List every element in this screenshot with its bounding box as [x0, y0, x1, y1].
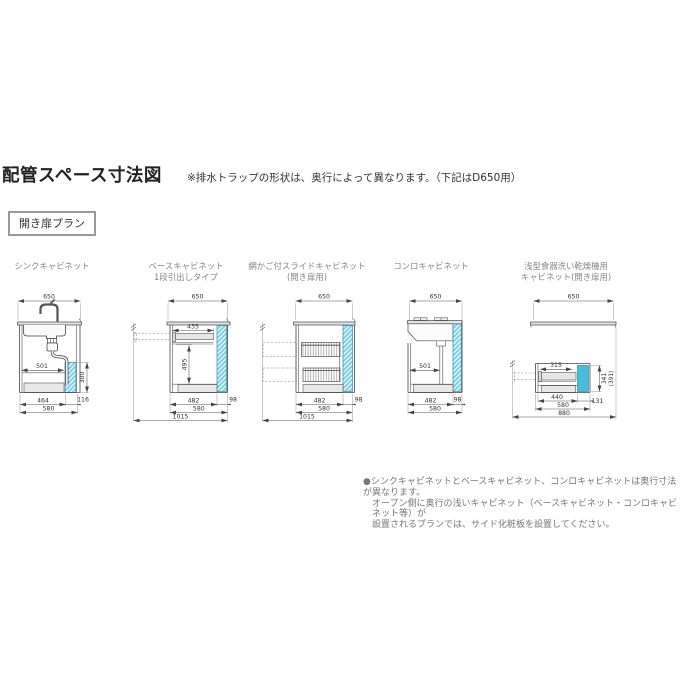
- sink-cabinet-drawing: 650 501 300: [18, 294, 89, 414]
- dim-label: 98: [229, 397, 237, 404]
- plan-badge: 開き扉プラン: [8, 211, 96, 236]
- dim-label: 482: [425, 397, 437, 404]
- label-conro-cabinet: コンロキャビネット: [381, 261, 481, 272]
- dim-label: 580: [43, 405, 55, 412]
- dim-label: 116: [77, 397, 89, 404]
- dim-label: 98: [355, 397, 363, 404]
- label-base-cabinet: ベースキャビネット 1段引出しタイプ: [136, 261, 236, 283]
- label-line: 1段引出しタイプ: [136, 272, 236, 283]
- cooktop-plate: [408, 321, 463, 324]
- dim-label: 501: [36, 363, 48, 370]
- dim-label: 464: [37, 397, 49, 404]
- drain-trap: [47, 343, 58, 351]
- drawer-body: [176, 334, 214, 340]
- dim-label: 650: [430, 294, 442, 301]
- footnote-line: オープン側に奥行の浅いキャビネット（ベースキャビネット・コンロキャビネット等）が: [363, 499, 678, 521]
- slide-cabinet-drawing: 650 482: [260, 294, 362, 422]
- piping-space-hatch: [453, 324, 462, 392]
- label-line: キャビネット(開き扉用): [509, 272, 623, 283]
- label-slide-cabinet: 網かご付スライドキャビネット (開き扉用): [242, 261, 372, 283]
- dim-label: 580: [557, 402, 569, 409]
- cabinet-base: [24, 383, 64, 393]
- footnote-line: 設置されるプランでは、サイド化粧板を設置してください。: [363, 520, 678, 531]
- wire-basket-pullout-dashed: [263, 343, 297, 357]
- label-line: (開き扉用): [242, 272, 372, 283]
- wire-basket-pullout-dashed: [263, 368, 297, 382]
- dim-label: 1015: [299, 413, 315, 420]
- label-line: シンクキャビネット: [2, 261, 102, 272]
- dim-label: 300: [79, 372, 86, 384]
- gas-fitting: [437, 341, 446, 346]
- dim-label: 440: [551, 394, 563, 401]
- sink-basin: [24, 325, 66, 339]
- dim-label: 482: [314, 397, 326, 404]
- dim-label: 580: [318, 405, 330, 412]
- dim-label: 482: [188, 397, 200, 404]
- label-sink-cabinet: シンクキャビネット: [2, 261, 102, 272]
- piping-space-solid: [578, 366, 589, 392]
- label-dishwasher-cabinet: 浅型食器洗い乾燥機用 キャビネット(開き扉用): [509, 261, 623, 283]
- cabinet-base: [414, 385, 454, 393]
- label-line: ベースキャビネット: [136, 261, 236, 272]
- countertop: [18, 322, 82, 325]
- label-line: コンロキャビネット: [381, 261, 481, 272]
- label-line: 浅型食器洗い乾燥機用: [509, 261, 623, 272]
- dim-label: 501: [419, 363, 431, 370]
- cabinet-base: [178, 385, 217, 393]
- dim-label: 580: [193, 405, 205, 412]
- dishwasher-body: [542, 373, 577, 381]
- conro-cabinet-drawing: 650 501 482: [408, 294, 466, 414]
- dim-label: 435: [187, 323, 199, 330]
- dim-label: 650: [43, 294, 55, 301]
- wire-basket-upper: [302, 343, 341, 357]
- footnote-line: ●シンクキャビネットとベースキャビネット、コンロキャビネットは奥行寸法が異なりま…: [363, 477, 678, 499]
- faucet-icon: [41, 305, 58, 322]
- piping-space-hatch: [343, 326, 353, 392]
- wire-basket-lower: [303, 368, 340, 382]
- cabinet-base: [542, 386, 576, 393]
- dim-label: 650: [568, 294, 580, 301]
- dishwasher-front: [539, 372, 542, 382]
- dim-label: 131: [592, 398, 604, 405]
- dim-label: 1015: [173, 413, 189, 420]
- cooktop-body: [408, 324, 453, 341]
- drain-strainer: [48, 339, 57, 344]
- countertop: [294, 322, 356, 325]
- cabinet-base: [303, 385, 343, 393]
- header-note: ※排水トラップの形状は、奥行によって異なります。（下記はD650用）: [187, 170, 521, 185]
- dim-label: 98: [454, 396, 462, 403]
- dim-label: 315: [550, 362, 562, 369]
- dim-label: 650: [192, 294, 204, 301]
- piping-space-hatch: [217, 326, 227, 392]
- page-title: 配管スペース寸法図: [2, 162, 162, 187]
- page: 配管スペース寸法図 ※排水トラップの形状は、奥行によって異なります。（下記はD6…: [0, 0, 680, 680]
- dim-label: 580: [429, 405, 441, 412]
- base-cabinet-drawing: 650 435 495: [131, 294, 237, 422]
- label-line: 網かご付スライドキャビネット: [242, 261, 372, 272]
- dim-label: 880: [558, 410, 570, 417]
- dim-label: 495: [181, 359, 188, 371]
- cabinet-drawings: 650 501 300: [0, 288, 680, 430]
- footnote: ●シンクキャビネットとベースキャビネット、コンロキャビネットは奥行寸法が異なりま…: [363, 477, 678, 531]
- countertop: [531, 322, 617, 325]
- drawer-front: [173, 333, 176, 342]
- dishwasher-cabinet-drawing: 650 315 341: [510, 294, 616, 419]
- dim-label: 341: [602, 373, 608, 384]
- dim-label: (391): [609, 371, 615, 387]
- dim-label: 650: [318, 294, 330, 301]
